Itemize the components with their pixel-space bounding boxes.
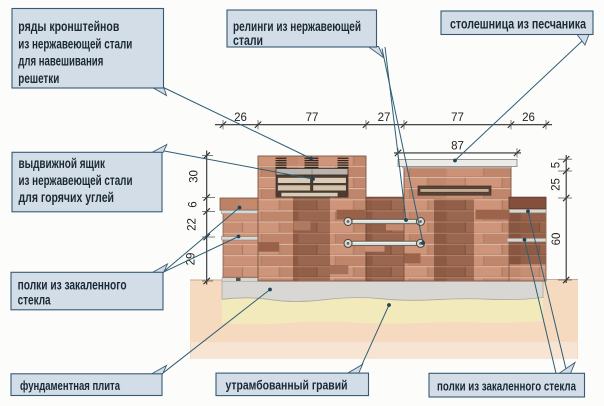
svg-text:26: 26 (522, 112, 535, 124)
svg-text:решетки: решетки (18, 71, 59, 86)
svg-text:77: 77 (451, 112, 464, 124)
svg-text:полки из закаленного стекла: полки из закаленного стекла (437, 379, 577, 394)
svg-text:87: 87 (451, 140, 464, 152)
svg-text:для навешивания: для навешивания (18, 54, 103, 69)
svg-text:30: 30 (189, 170, 201, 183)
svg-text:полки из закаленного: полки из закаленного (18, 278, 127, 293)
svg-text:25: 25 (551, 178, 563, 191)
svg-text:для горячих углей: для горячих углей (19, 190, 115, 205)
svg-text:ряды кронштейнов: ряды кронштейнов (18, 19, 119, 34)
svg-text:27: 27 (378, 112, 391, 124)
svg-text:утрамбованный гравий: утрамбованный гравий (226, 378, 348, 393)
svg-text:стали: стали (233, 33, 263, 48)
svg-text:стекла: стекла (18, 293, 51, 308)
svg-text:выдвижной ящик: выдвижной ящик (19, 156, 106, 171)
svg-text:22: 22 (187, 218, 199, 231)
svg-text:релинги из нержавеющей: релинги из нержавеющей (233, 19, 361, 34)
svg-text:из нержавеющей стали: из нержавеющей стали (18, 36, 132, 51)
svg-text:из нержавеющей стали: из нержавеющей стали (19, 173, 133, 188)
svg-text:77: 77 (306, 112, 319, 124)
svg-text:фундаментная плита: фундаментная плита (20, 378, 121, 393)
svg-text:столешница из песчаника: столешница из песчаника (450, 17, 586, 32)
svg-text:60: 60 (551, 233, 563, 246)
svg-text:5: 5 (551, 162, 563, 168)
svg-text:6: 6 (188, 201, 200, 207)
